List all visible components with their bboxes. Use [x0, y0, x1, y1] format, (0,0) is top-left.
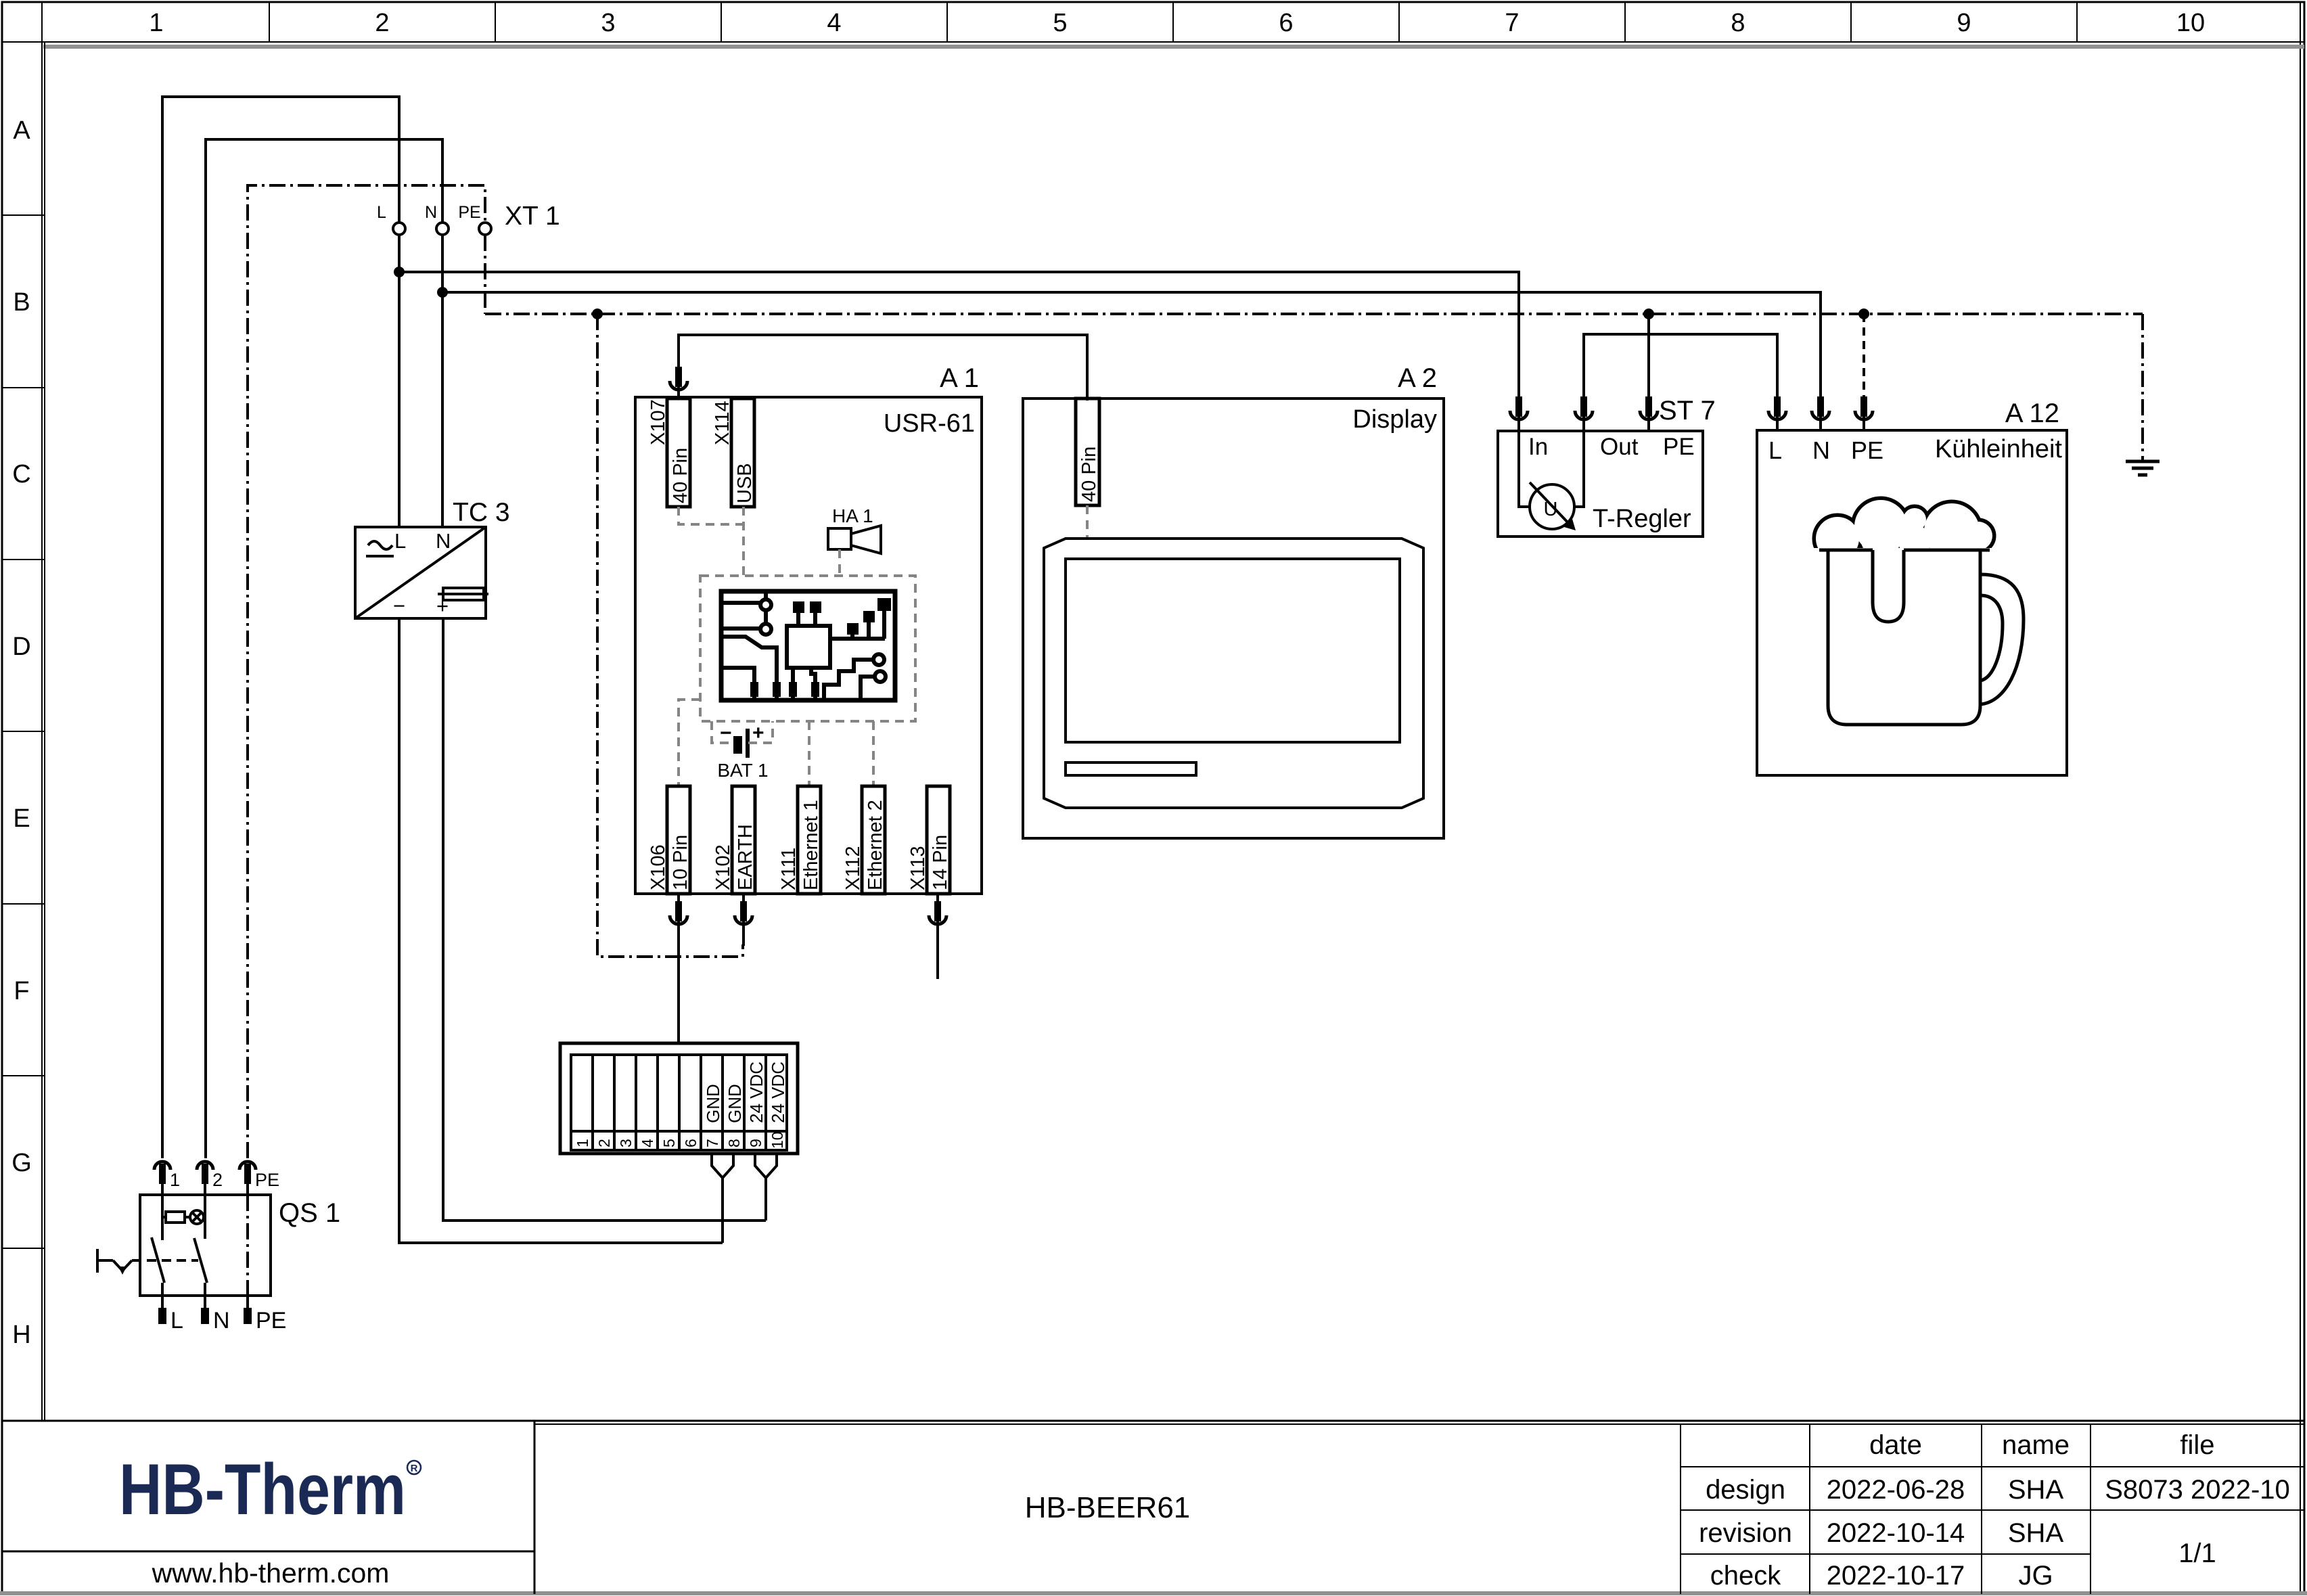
svg-text:+: + [752, 722, 764, 744]
svg-text:D: D [12, 633, 30, 661]
svg-text:9: 9 [747, 1139, 764, 1147]
svg-text:S8073 2022-10: S8073 2022-10 [2105, 1475, 2290, 1505]
svg-text:L: L [1768, 436, 1782, 464]
svg-text:2022-10-17: 2022-10-17 [1827, 1561, 1965, 1591]
svg-text:8: 8 [725, 1139, 743, 1147]
svg-text:PE: PE [458, 203, 480, 222]
svg-text:1: 1 [149, 9, 163, 37]
svg-text:2022-06-28: 2022-06-28 [1827, 1475, 1965, 1505]
svg-text:X112: X112 [842, 846, 864, 890]
svg-text:1: 1 [170, 1170, 180, 1190]
svg-text:3: 3 [617, 1139, 635, 1147]
svg-text:QS 1: QS 1 [279, 1198, 340, 1228]
svg-text:E: E [13, 804, 30, 833]
svg-text:1/1: 1/1 [2178, 1538, 2216, 1568]
svg-text:G: G [12, 1149, 32, 1177]
svg-text:USB: USB [734, 463, 756, 503]
svg-text:B: B [13, 288, 30, 317]
svg-text:14 Pin: 14 Pin [930, 835, 951, 890]
svg-text:−: − [393, 594, 405, 618]
svg-text:24 VDC: 24 VDC [746, 1062, 767, 1123]
svg-text:10: 10 [2176, 9, 2205, 37]
svg-text:4: 4 [827, 9, 841, 37]
svg-text:R: R [411, 1463, 418, 1474]
svg-text:X106: X106 [647, 844, 669, 890]
svg-text:6: 6 [682, 1139, 700, 1147]
svg-text:A: A [13, 116, 30, 145]
svg-text:8: 8 [1731, 9, 1745, 37]
svg-text:N: N [436, 529, 451, 553]
svg-text:HB-Therm: HB-Therm [119, 1449, 406, 1530]
svg-text:5: 5 [660, 1139, 678, 1147]
svg-text:40 Pin: 40 Pin [670, 448, 691, 503]
svg-text:L: L [170, 1308, 183, 1333]
svg-text:GND: GND [725, 1084, 745, 1123]
svg-text:2: 2 [212, 1170, 223, 1190]
svg-text:4: 4 [639, 1139, 656, 1147]
svg-text:24 VDC: 24 VDC [768, 1062, 788, 1123]
svg-text:Ethernet 2: Ethernet 2 [865, 800, 886, 890]
svg-text:EARTH: EARTH [735, 824, 756, 890]
svg-text:PE: PE [255, 1170, 279, 1190]
svg-text:USR-61: USR-61 [884, 409, 975, 438]
svg-text:GND: GND [703, 1084, 723, 1123]
svg-text:Display: Display [1352, 405, 1437, 434]
svg-text:Ethernet 1: Ethernet 1 [800, 800, 822, 890]
svg-text:X114: X114 [712, 401, 733, 445]
svg-text:A 1: A 1 [940, 363, 979, 393]
svg-text:JG: JG [2018, 1561, 2053, 1591]
svg-text:www.hb-therm.com: www.hb-therm.com [152, 1557, 390, 1589]
svg-text:N: N [1812, 436, 1830, 464]
svg-text:L: L [394, 529, 406, 553]
svg-text:9: 9 [1957, 9, 1971, 37]
svg-text:X107: X107 [647, 399, 669, 445]
svg-text:PE: PE [256, 1308, 286, 1333]
svg-text:L: L [377, 203, 386, 222]
svg-text:Out: Out [1600, 434, 1639, 460]
svg-text:1: 1 [574, 1139, 591, 1147]
svg-text:7: 7 [1505, 9, 1519, 37]
svg-text:H: H [12, 1321, 30, 1349]
svg-text:5: 5 [1053, 9, 1067, 37]
svg-text:XT 1: XT 1 [505, 202, 560, 231]
svg-text:Kühleinheit: Kühleinheit [1935, 435, 2062, 463]
svg-text:HB-BEER61: HB-BEER61 [1025, 1491, 1191, 1524]
svg-text:A 12: A 12 [2005, 398, 2059, 428]
svg-text:date: date [1869, 1430, 1922, 1460]
svg-text:X111: X111 [778, 848, 800, 890]
svg-text:design: design [1706, 1475, 1785, 1505]
svg-text:6: 6 [1279, 9, 1293, 37]
svg-text:revision: revision [1699, 1518, 1792, 1548]
svg-text:SHA: SHA [2008, 1475, 2064, 1505]
svg-text:PE: PE [1851, 436, 1883, 464]
svg-text:N: N [213, 1308, 230, 1333]
svg-text:−: − [720, 722, 732, 744]
svg-text:10: 10 [769, 1131, 786, 1149]
svg-text:2: 2 [595, 1139, 613, 1147]
svg-text:F: F [14, 977, 29, 1005]
svg-text:2: 2 [375, 9, 389, 37]
svg-text:PE: PE [1663, 434, 1695, 460]
svg-text:ST 7: ST 7 [1659, 396, 1716, 426]
svg-text:HA 1: HA 1 [832, 505, 873, 526]
svg-text:7: 7 [704, 1139, 721, 1147]
svg-text:check: check [1710, 1561, 1781, 1591]
svg-text:N: N [425, 203, 437, 222]
svg-text:40 Pin: 40 Pin [1078, 447, 1100, 502]
svg-text:TC 3: TC 3 [453, 498, 510, 527]
svg-text:SHA: SHA [2008, 1518, 2064, 1548]
svg-text:T-Regler: T-Regler [1593, 505, 1691, 533]
svg-text:X113: X113 [907, 846, 929, 890]
svg-text:In: In [1528, 434, 1548, 460]
svg-text:file: file [2180, 1430, 2214, 1460]
svg-text:name: name [2002, 1430, 2070, 1460]
svg-text:2022-10-14: 2022-10-14 [1827, 1518, 1965, 1548]
svg-text:3: 3 [601, 9, 615, 37]
svg-text:BAT 1: BAT 1 [717, 760, 768, 781]
svg-text:X102: X102 [712, 844, 734, 890]
svg-text:A 2: A 2 [1398, 363, 1437, 393]
svg-text:C: C [12, 460, 30, 488]
svg-text:10 Pin: 10 Pin [670, 835, 691, 890]
